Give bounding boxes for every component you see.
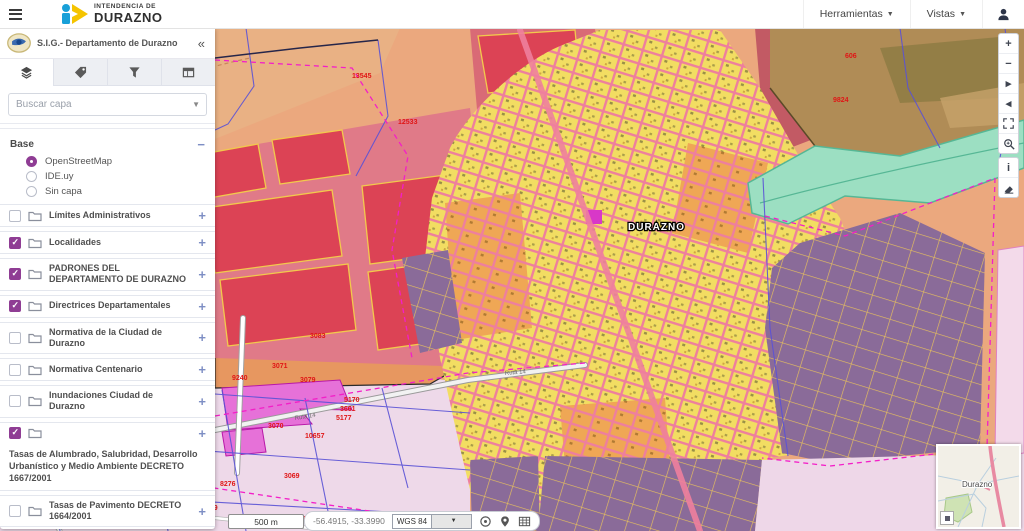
app-window: 1354512533606982430833071924030795170366… — [0, 0, 1024, 531]
folder-icon — [28, 332, 42, 344]
layer-checkbox[interactable] — [9, 237, 21, 249]
search-input[interactable] — [8, 93, 207, 116]
chevron-down-icon: ▼ — [887, 11, 894, 18]
radio-icon[interactable] — [26, 156, 37, 167]
app-logo: INTENDENCIA DE DURAZNO — [61, 3, 163, 25]
status-bar: -56.4915, -33.3990 WGS 84 ▼ — [304, 511, 540, 531]
layer-row-padrones: PADRONES DEL DEPARTAMENTO DE DURAZNO + — [0, 258, 215, 291]
info-button[interactable]: i — [999, 158, 1018, 177]
sidebar-collapse-button[interactable]: « — [194, 36, 209, 51]
layer-expand-button[interactable]: + — [198, 300, 206, 313]
overview-map[interactable]: Durazno — [936, 444, 1021, 529]
radio-icon[interactable] — [26, 186, 37, 197]
layer-expand-button[interactable]: + — [198, 427, 206, 440]
layer-label: PADRONES DEL DEPARTAMENTO DE DURAZNO — [49, 263, 191, 286]
layer-expand-button[interactable]: + — [198, 268, 206, 281]
layer-expand-button[interactable]: + — [198, 236, 206, 249]
layer-checkbox[interactable] — [9, 364, 21, 376]
parcel-label: 3661 — [340, 406, 356, 413]
expand-arrows-icon — [1003, 118, 1014, 129]
layer-checkbox[interactable] — [9, 268, 21, 280]
layer-row-inundaciones: Inundaciones Ciudad de Durazno + — [0, 385, 215, 418]
parcel-label: 3070 — [268, 423, 284, 430]
parcel-label: 3071 — [272, 363, 288, 370]
base-section: Base − OpenStreetMap IDE.uy Sin capa — [0, 132, 215, 204]
locate-button[interactable] — [499, 515, 511, 528]
layer-expand-button[interactable]: + — [198, 209, 206, 222]
base-collapse-button[interactable]: − — [197, 138, 205, 151]
layer-label: Inundaciones Ciudad de Durazno — [49, 390, 191, 413]
parcel-label: 12533 — [398, 119, 418, 126]
layers-sidebar: S.I.G.- Departamento de Durazno « — [0, 28, 215, 529]
tab-table[interactable] — [161, 59, 215, 85]
layer-row-tasas-alumbrado: + Tasas de Alumbrado, Salubridad, Desarr… — [0, 422, 215, 491]
sidebar-title: S.I.G.- Departamento de Durazno — [37, 38, 194, 48]
parcel-label: 5170 — [344, 397, 360, 404]
graticule-button[interactable] — [518, 515, 531, 528]
layer-expand-button[interactable]: + — [198, 505, 206, 518]
folder-icon — [28, 268, 42, 280]
grid-icon — [518, 515, 531, 528]
user-account-button[interactable] — [982, 0, 1024, 28]
layer-row-directrices: Directrices Departamentales + — [0, 295, 215, 318]
layer-label: Normativa Centenario — [49, 364, 191, 375]
parcel-label: 13545 — [352, 73, 372, 80]
eraser-icon — [1003, 182, 1015, 194]
basemap-option-sincapa[interactable]: Sin capa — [10, 184, 205, 199]
folder-icon — [28, 395, 42, 407]
coat-of-arms-icon — [6, 32, 32, 54]
layer-row-normativa-ciudad: Normativa de la Ciudad de Durazno + — [0, 322, 215, 355]
divider — [0, 123, 215, 129]
layer-checkbox[interactable] — [9, 332, 21, 344]
basemap-option-label: Sin capa — [45, 186, 82, 197]
folder-icon — [28, 237, 42, 249]
base-section-title: Base — [10, 139, 197, 150]
layer-label: Localidades — [49, 237, 191, 248]
pan-prev-button[interactable]: ◂ — [999, 93, 1018, 113]
tab-filter[interactable] — [107, 59, 161, 85]
layer-checkbox[interactable] — [9, 505, 21, 517]
logo-text-bottom: DURAZNO — [94, 11, 163, 24]
layers-icon — [20, 66, 33, 79]
layer-search: ▼ — [0, 86, 215, 122]
user-icon — [997, 8, 1010, 21]
tag-icon — [74, 66, 87, 79]
top-header: INTENDENCIA DE DURAZNO Herramientas ▼ Vi… — [0, 0, 1024, 29]
crs-select[interactable]: WGS 84 ▼ — [392, 514, 472, 529]
center-target-button[interactable] — [479, 515, 492, 528]
target-icon — [479, 515, 492, 528]
city-label: DURAZNO — [628, 222, 685, 233]
menu-icon[interactable] — [0, 0, 35, 28]
basemap-option-ideuy[interactable]: IDE.uy — [10, 169, 205, 184]
folder-icon — [28, 427, 42, 439]
layer-label: Normativa de la Ciudad de Durazno — [49, 327, 191, 350]
parcel-label: 606 — [845, 53, 857, 60]
layer-row-limites: Límites Administrativos + — [0, 204, 215, 227]
parcel-label: 3079 — [300, 377, 316, 384]
menu-vistas-label: Vistas — [927, 8, 955, 20]
basemap-option-openstreetmap[interactable]: OpenStreetMap — [10, 154, 205, 169]
pan-next-button[interactable]: ▸ — [999, 73, 1018, 93]
crs-value: WGS 84 — [393, 517, 432, 526]
logo-mark-icon — [61, 3, 89, 25]
layer-row-tasas-pavimento: Tasas de Pavimento DECRETO 1664/2001 + — [0, 495, 215, 528]
zoom-extent-button[interactable] — [999, 113, 1018, 133]
zoom-in-button[interactable]: + — [999, 34, 1018, 53]
parcel-label: 9240 — [232, 375, 248, 382]
filter-funnel-icon — [128, 66, 141, 79]
mouse-coordinates: -56.4915, -33.3990 — [313, 516, 385, 526]
location-pin-icon — [499, 515, 511, 528]
layers-list: Límites Administrativos + Localidades + … — [0, 204, 215, 529]
chevron-down-icon: ▼ — [959, 11, 966, 18]
overview-toggle-button[interactable] — [940, 511, 954, 525]
layer-checkbox[interactable] — [9, 210, 21, 222]
measure-erase-button[interactable] — [999, 177, 1018, 197]
folder-icon — [28, 210, 42, 222]
sidebar-header: S.I.G.- Departamento de Durazno « — [0, 28, 215, 59]
basemap-option-label: OpenStreetMap — [45, 156, 112, 167]
layer-label: Tasas de Pavimento DECRETO 1664/2001 — [49, 500, 191, 523]
menu-vistas[interactable]: Vistas ▼ — [910, 0, 982, 28]
folder-icon — [28, 505, 42, 517]
zoom-out-button[interactable]: − — [999, 53, 1018, 73]
scale-label: 500 m — [254, 517, 278, 527]
layer-row-normativa-centenario: Normativa Centenario + — [0, 358, 215, 381]
basemap-option-label: IDE.uy — [45, 171, 74, 182]
layer-checkbox[interactable] — [9, 300, 21, 312]
table-icon — [182, 66, 195, 79]
parcel-label: 10657 — [305, 433, 325, 440]
layer-label: Tasas de Alumbrado, Salubridad, Desarrol… — [9, 447, 206, 486]
map-controls-secondary: i — [998, 157, 1019, 198]
scale-bar: 500 m — [228, 514, 304, 529]
layer-row-localidades: Localidades + — [0, 231, 215, 254]
overview-city-label: Durazno — [962, 480, 993, 489]
layer-label: Límites Administrativos — [49, 210, 191, 221]
zoom-box-button[interactable] — [999, 133, 1018, 153]
folder-icon — [28, 300, 42, 312]
layer-label: Directrices Departamentales — [49, 300, 191, 311]
sidebar-tabs — [0, 59, 215, 86]
layer-expand-button[interactable]: + — [198, 395, 206, 408]
parcel-label: 5177 — [336, 415, 352, 422]
tab-layers[interactable] — [0, 59, 53, 86]
magnifier-plus-icon — [1003, 138, 1015, 150]
menu-herramientas-label: Herramientas — [820, 8, 883, 20]
layer-checkbox[interactable] — [9, 427, 21, 439]
radio-icon[interactable] — [26, 171, 37, 182]
parcel-label: 9824 — [833, 97, 849, 104]
parcel-label: 3069 — [284, 473, 300, 480]
layer-expand-button[interactable]: + — [198, 331, 206, 344]
parcel-label: 8276 — [220, 481, 236, 488]
layer-expand-button[interactable]: + — [198, 363, 206, 376]
parcel-label: 3083 — [310, 333, 326, 340]
tab-tags[interactable] — [53, 59, 107, 85]
menu-herramientas[interactable]: Herramientas ▼ — [803, 0, 910, 28]
layer-checkbox[interactable] — [9, 395, 21, 407]
map-controls-primary: + − ▸ ◂ — [998, 33, 1019, 154]
folder-icon — [28, 364, 42, 376]
chevron-down-icon: ▼ — [431, 515, 471, 528]
